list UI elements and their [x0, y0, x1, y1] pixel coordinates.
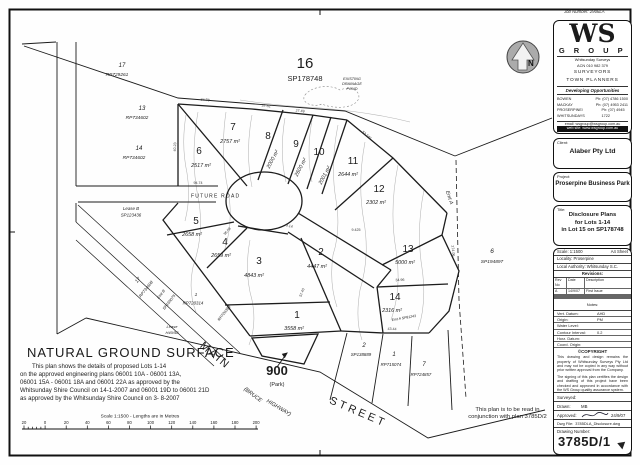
note-line: on the approved engineering plans 06001 … [20, 371, 252, 379]
plan-line [418, 190, 424, 330]
approved-date: 24/9/07 [611, 413, 625, 418]
authority-row: Local Authority: Whitsunday S.C. [554, 264, 631, 271]
plan-line [178, 104, 247, 186]
sheet-size: A4 Sheet [611, 249, 628, 255]
dimension-label: 40.23 [173, 142, 177, 151]
dimension-label: 53.240 [361, 130, 372, 140]
plan-line [22, 42, 56, 44]
project-box: Project: Proserpine Business Park [553, 172, 632, 202]
parcel-label: 17 [134, 276, 142, 284]
parcel-label: POND [347, 87, 358, 91]
survey-plan-sheet: N 13558 m²24447 m²34843 m²42659 m²52658 … [0, 0, 640, 465]
parcel-label: DRAINAGE [342, 82, 362, 86]
parcel-label: 14 [136, 146, 143, 152]
lot-number: 12 [373, 184, 385, 195]
lot-area: 2302 m² [365, 200, 386, 206]
north-arrow: N [507, 41, 539, 73]
plan-approval-note: This plan shows the details of proposed … [20, 363, 252, 403]
note-line: 06001 15A - 06001 18A and 06001 22A as a… [20, 379, 252, 387]
lot-number: 4 [222, 237, 228, 248]
client-name: Alaber Pty Ltd [554, 148, 631, 155]
firm-role-planners: TOWN PLANNERS [554, 78, 631, 84]
parcel-label: 1 [195, 292, 198, 298]
lot-area: 2659 m² [210, 253, 231, 259]
scalebar-tick-label: 140 [189, 420, 197, 425]
datum-value: AHD [597, 311, 631, 316]
lot-number: 1 [294, 310, 300, 321]
lot-area: 4843 m² [244, 273, 264, 279]
parcel-label: RP734602 [123, 155, 146, 161]
parcel-label: (Park) [270, 382, 285, 388]
dimension-label: 9.14 [285, 223, 293, 229]
parcel-label: 13 [139, 106, 146, 112]
datum-label: Contour Interval: [554, 330, 597, 335]
drawing-number-row: Drawing Number: 3785D/1 [554, 427, 631, 454]
drawn-value: MB [581, 404, 631, 409]
datum-label: Vert. Datum: [554, 311, 597, 316]
rev-col: Date [567, 278, 585, 288]
parcel-label: EXISTING [343, 77, 361, 81]
datum-value [597, 336, 631, 341]
plan-line [377, 284, 448, 287]
datum-value [597, 342, 631, 347]
lot-area: 4447 m² [307, 264, 327, 270]
client-label: Client: [554, 139, 631, 145]
firm-tagline: Developing Opportunities [557, 86, 628, 95]
parcel-label: Emt A SP81243 [391, 314, 416, 322]
plan-line [163, 203, 250, 336]
parcel-label: RP729261 [106, 72, 129, 78]
lot-number: 11 [348, 156, 359, 167]
dimension-label: 37.32 [261, 104, 270, 109]
plan-line [372, 334, 383, 403]
scalebar-tick-label: 20 [64, 420, 69, 425]
dwg-file-label: Dwg File: [557, 421, 573, 426]
project-name: Proserpine Business Park [554, 181, 631, 188]
lot-number: 6 [196, 146, 202, 157]
lot-area: 2757 m² [219, 139, 240, 145]
scalebar-tick-label: 20 [22, 420, 27, 425]
cul-de-sac-loop [226, 172, 302, 230]
notes-label: Notes: [554, 299, 631, 311]
lot-number: 9 [293, 139, 299, 150]
plan-line [455, 118, 552, 156]
parcel-label: H40/58 [166, 330, 180, 335]
parcel-label: SP123436 [121, 213, 142, 218]
lot-boundaries [163, 104, 459, 364]
plan-line [76, 222, 226, 360]
datum-value [597, 323, 631, 328]
approved-label: Approved: [554, 413, 581, 418]
signature-squiggle [581, 411, 609, 420]
project-label: Project: [554, 173, 631, 179]
lot-area: 2517 m² [190, 163, 211, 169]
scalebar-tick-label: 200 [253, 420, 261, 425]
qa-text: The signing of this plan certifies the d… [554, 375, 631, 393]
plan-line [249, 115, 253, 187]
rev-col: Rev No [554, 278, 567, 288]
parcel-label: 1 [392, 352, 395, 358]
dimension-label: 57.40 [299, 288, 306, 298]
locality-value: Locality: Proserpine [557, 256, 594, 262]
firm-acn: ACN 010 982 379 [554, 64, 631, 69]
lot-area: 2658 m² [181, 232, 202, 238]
parcel-label: RP715074 [381, 362, 402, 367]
firm-role-surveyors: SURVEYORS [554, 70, 631, 76]
scalebar-tick-label: 60 [106, 420, 111, 425]
surveyor-logo-box: WS G R O U P Whitsunday Surveys ACN 010 … [553, 20, 632, 134]
revisions-column-headers: Rev No Date Description [554, 278, 631, 289]
parcel-label: RP720363 [216, 304, 232, 322]
authority-value: Local Authority: Whitsunday S.C. [557, 264, 618, 270]
plan-line [282, 118, 286, 182]
scalebar-tick-label: 0 [44, 420, 47, 425]
lot-area: 2600 m² [293, 157, 308, 178]
plan-line [341, 331, 383, 333]
parcel-label: Emt B [156, 288, 167, 300]
lot-number: 10 [313, 147, 325, 158]
plan-line [448, 330, 452, 410]
lot-number: 13 [402, 244, 414, 255]
scalebar-tick-label: 180 [232, 420, 240, 425]
surveyed-row: Surveyed: [554, 392, 631, 401]
parcel-label: RP734602 [126, 115, 149, 121]
datum-value: PM [597, 317, 631, 322]
plan-line [330, 333, 347, 400]
dimension-label: 43.44 [387, 327, 396, 331]
dimension-label: 36.58 [223, 227, 232, 236]
ws-group-wordmark: G R O U P [557, 46, 628, 57]
office-phone: Ph: (07) 4945 1722 [602, 108, 628, 119]
parcel-label: Lease B [123, 206, 139, 211]
copyright-text: This drawing and design remains the prop… [554, 355, 631, 373]
dimension-label: 94.74 [194, 181, 203, 185]
locality-row: Locality: Proserpine [554, 256, 631, 263]
rev-date: 14/9/07 [567, 289, 585, 294]
plan-line [358, 142, 366, 340]
lot-number: 5 [193, 216, 199, 227]
plan-line [191, 112, 201, 312]
firm-name: Whitsunday Surveys [554, 58, 631, 63]
lot-number: 3 [256, 256, 262, 267]
parcel-label: 2 [361, 343, 366, 349]
plan-line [347, 120, 447, 213]
datum-label: Horz. Datum: [554, 336, 597, 341]
plan-line [429, 213, 459, 333]
ws-logo: WS [554, 22, 631, 46]
scalebar-tick-label: 80 [127, 420, 132, 425]
dwg-file-row: Dwg File: 3785DLA_Disclosure.dwg [554, 419, 631, 427]
rev-desc: First Issue [585, 289, 631, 294]
scale-value: Scale: 1:1500 [557, 249, 583, 255]
lot-number: 14 [389, 292, 401, 303]
conjunction-line: conjunction with plan 3785D/2 [460, 414, 555, 421]
approved-row: Approved: 24/9/07 [554, 410, 631, 419]
note-line: This plan shows the details of proposed … [20, 363, 252, 371]
approved-signature: 24/9/07 [581, 411, 631, 420]
contact-row: PROSERPINE/ WHITSUNDAYS Ph: (07) 4945 17… [554, 108, 631, 119]
lot-area: 5000 m² [395, 260, 415, 266]
scalebar-tick-label: 100 [147, 420, 155, 425]
scale-bar [22, 426, 258, 430]
plan-line [332, 125, 338, 307]
parcel-label: RP724857 [411, 372, 432, 377]
scale-row: Scale: 1:1500 A4 Sheet [554, 249, 631, 256]
plan-line [57, 318, 86, 334]
dwg-file-name: 3785DLA_Disclosure.dwg [575, 421, 620, 426]
conjunction-line: This plan is to be read in [460, 407, 555, 414]
plan-line [225, 302, 330, 305]
parcel-label: 6 [490, 248, 494, 255]
plan-line [78, 205, 240, 353]
dimension-label: 27.49 [295, 109, 304, 114]
scalebar-caption: Scale 1:1500 - Lengths are in Metres [101, 414, 180, 420]
parcel-label: 17 [119, 63, 126, 69]
plan-line [408, 336, 412, 406]
parcel-label: RP720314 [183, 301, 204, 306]
datum-label: Water Level: [554, 323, 597, 328]
parcel-label: 16 [297, 55, 314, 72]
note-line: as approved by the Whitsunday Shire Coun… [20, 395, 252, 403]
parcel-label: SP194897 [481, 259, 504, 265]
parcel-label: STREET [328, 395, 389, 430]
plan-line [377, 270, 391, 287]
lot-area: 3558 m² [284, 326, 304, 332]
plan-line [247, 240, 253, 345]
datum-row: Coord. Origin: [554, 342, 631, 348]
north-letter: N [528, 59, 534, 68]
conjunction-note: This plan is to be read in conjunction w… [460, 407, 555, 422]
datum-label: Coord. Origin: [554, 342, 597, 347]
note-line: Whitsunday Shire Council on 14-1-2007 an… [20, 387, 252, 395]
dimension-label: 9.425 [352, 228, 361, 232]
client-box: Client: Alaber Pty Ltd [553, 138, 632, 169]
plan-line [288, 232, 374, 288]
parcel-label: FUTURE ROAD [191, 194, 240, 200]
parcel-label: 900 [266, 363, 288, 378]
parcel-label: 7 [422, 362, 426, 368]
scalebar-tick-label: 40 [85, 420, 90, 425]
rev-no: A [554, 289, 567, 294]
plan-line [283, 353, 288, 357]
lot-number: 8 [265, 131, 271, 142]
lot-area: 2644 m² [337, 172, 358, 178]
office-name: PROSERPINE/ WHITSUNDAYS [557, 108, 602, 119]
title-line: in Lot 15 on SP178748 [554, 227, 631, 235]
job-number: Job Number: 2906LA [564, 9, 605, 14]
drawing-info-box: Scale: 1:1500 A4 Sheet Locality: Proserp… [553, 248, 632, 455]
firm-website: web site: www.wsgroup.com.au [557, 126, 628, 131]
parcel-label: HIGHWAY) [265, 398, 292, 417]
dimension-label: 34.96 [395, 278, 404, 282]
scalebar-tick-label: 120 [168, 420, 176, 425]
lot-number: 2 [318, 247, 324, 258]
datum-value: 0.2 [597, 330, 631, 335]
plan-line [298, 213, 391, 270]
surveyed-label: Surveyed: [554, 395, 581, 400]
title-line: Disclosure Plans [554, 212, 631, 220]
dimension-label: 84.78 [200, 98, 209, 103]
lot-number: 7 [230, 122, 236, 133]
scalebar-tick-label: 160 [210, 420, 218, 425]
datum-label: Origin: [554, 317, 597, 322]
lot-area: 2316 m² [381, 308, 402, 314]
rev-col: Description [585, 278, 631, 288]
plan-line [184, 115, 189, 221]
parcel-label: SP178748 [287, 74, 322, 83]
drawn-row: Drawn: MB [554, 401, 631, 410]
revisions-heading: Revisions: [554, 271, 631, 278]
drawn-label: Drawn: [554, 404, 581, 409]
plan-line [309, 120, 312, 182]
park-parcel-outline [252, 334, 318, 364]
title-box: Title: Disclosure Plans for Lots 1-14 in… [553, 205, 632, 246]
parcel-label: Lease [167, 324, 179, 329]
title-line: for Lots 1-14 [554, 220, 631, 228]
parcel-label: SP138889 [351, 352, 372, 357]
parcel-label: Emt A [444, 190, 454, 206]
natural-ground-surface-heading: NATURAL GROUND SURFACE [27, 345, 235, 360]
